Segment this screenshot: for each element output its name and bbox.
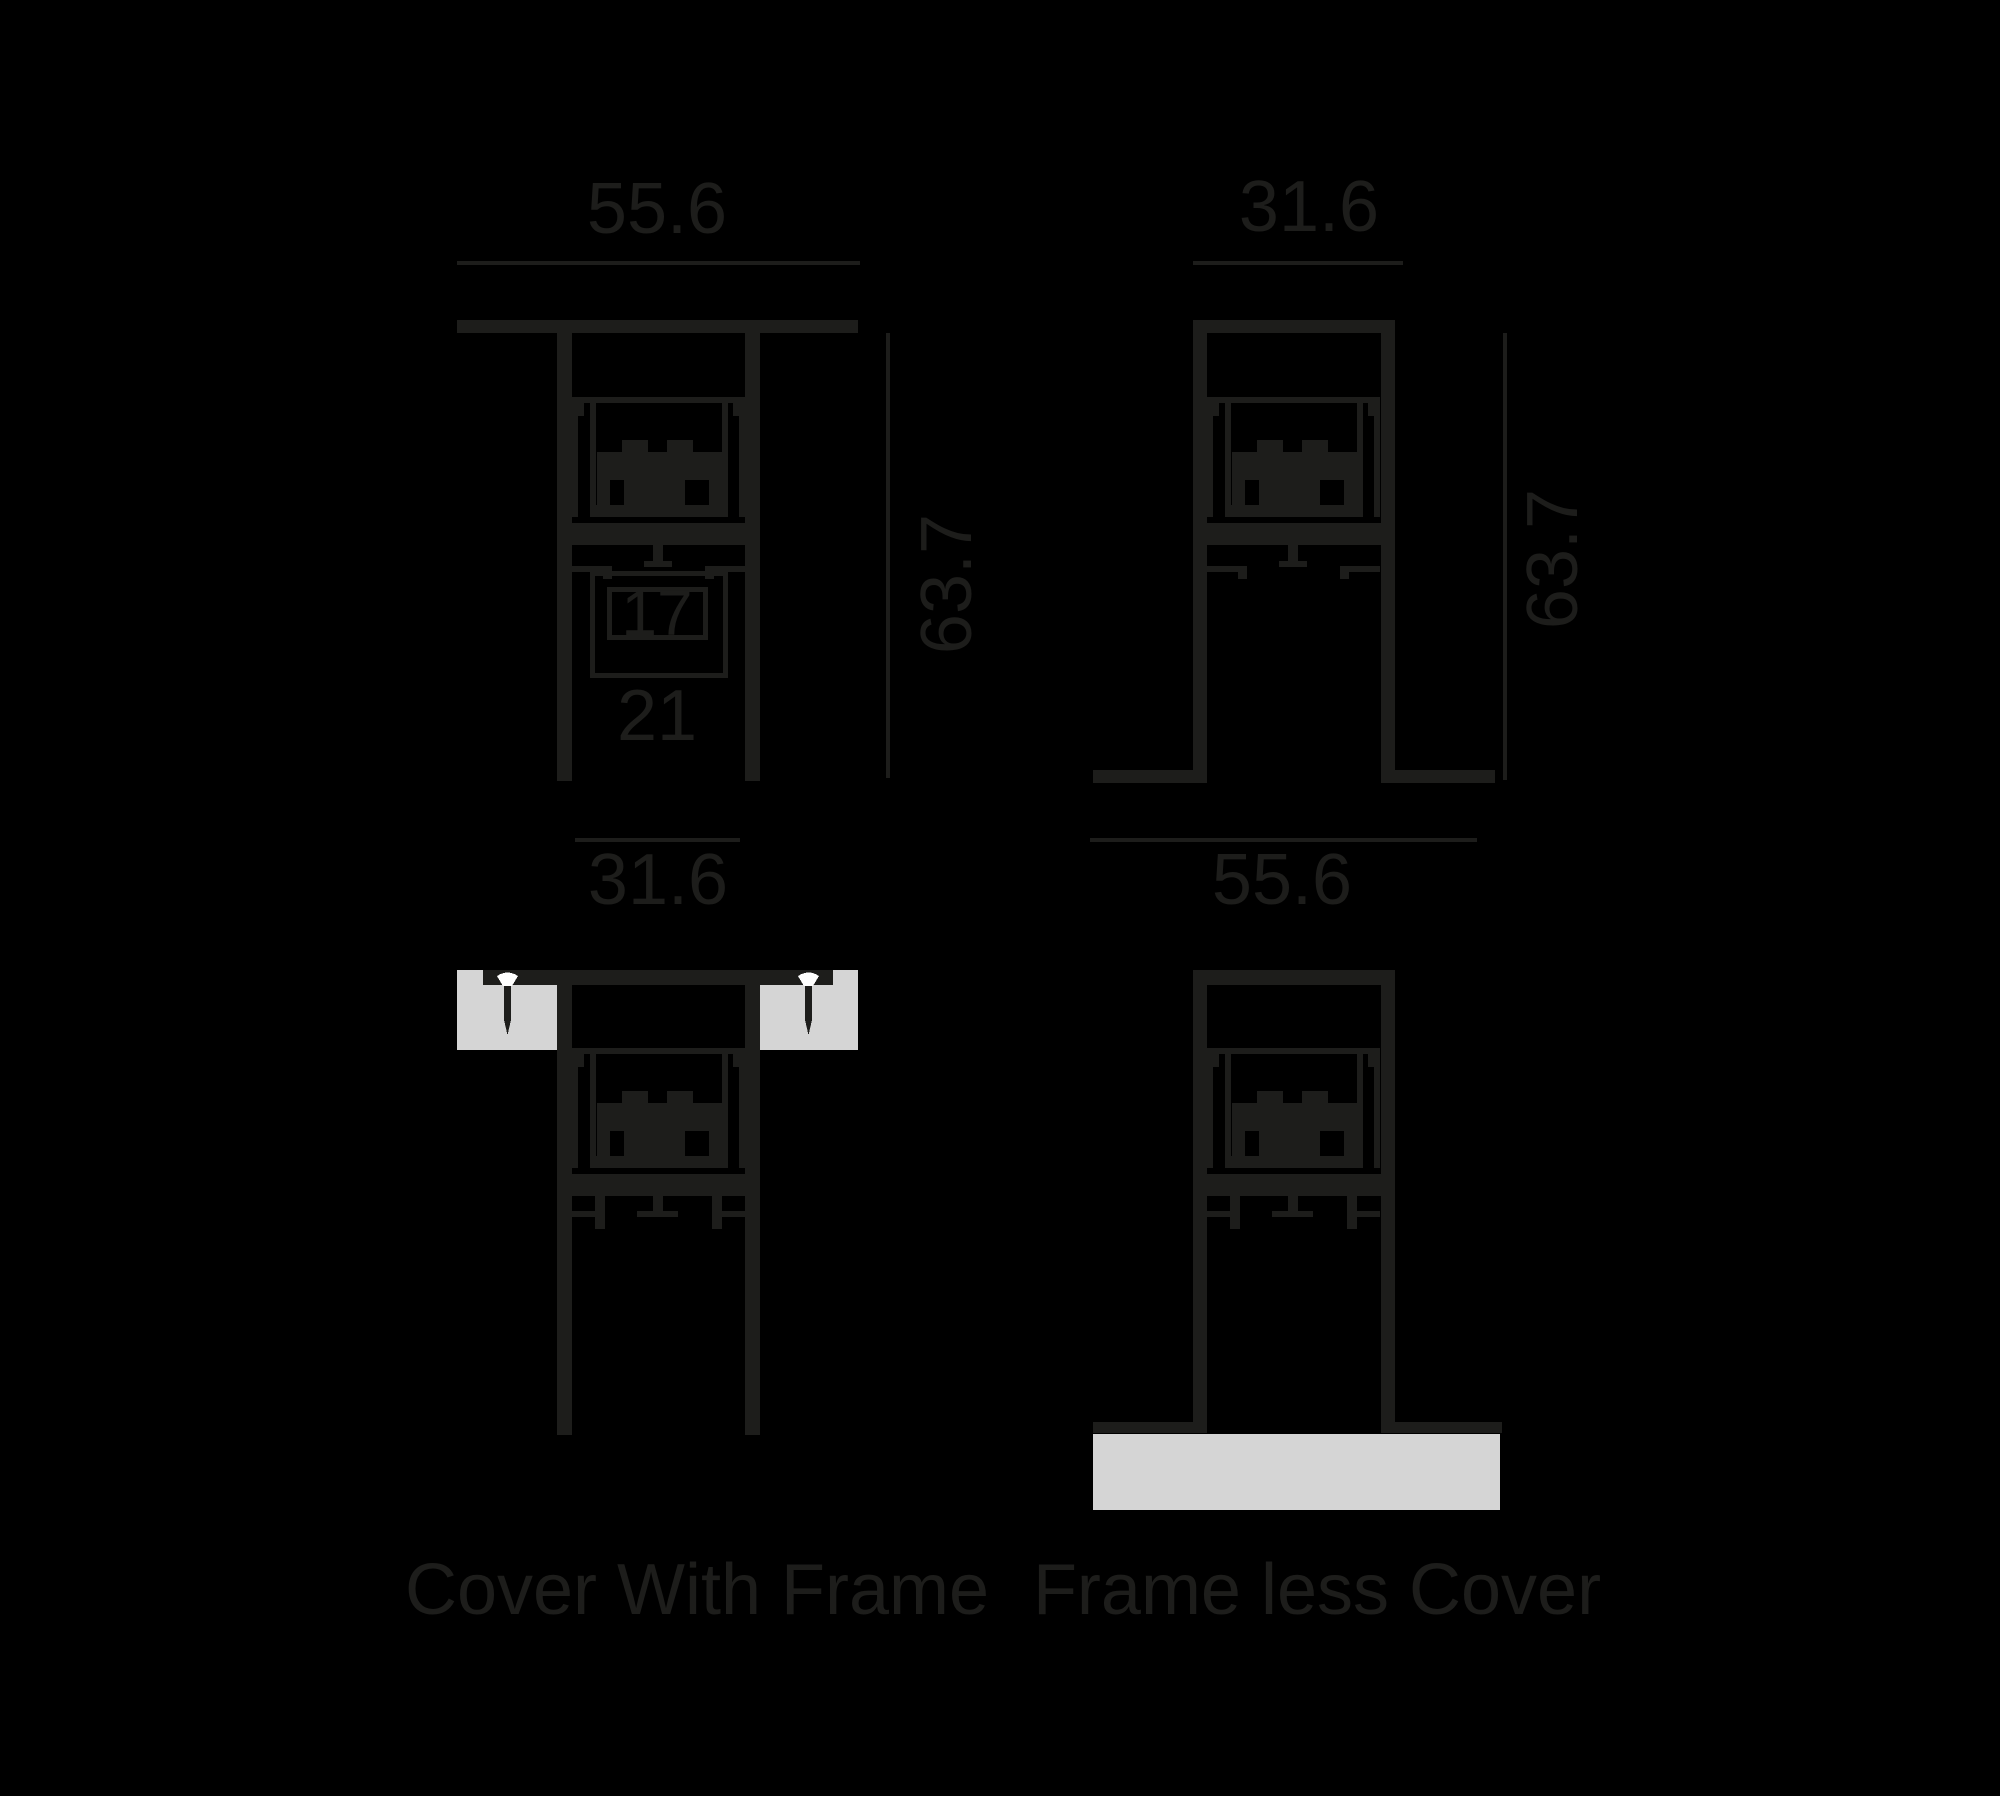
tray-tab-left bbox=[622, 440, 648, 453]
tray-center-block bbox=[1259, 1131, 1320, 1158]
inner-slot-box-left bbox=[607, 587, 612, 640]
tray-leg-left bbox=[597, 1131, 610, 1156]
bottom-right-install-diagram: Frame less Cover bbox=[1033, 970, 1601, 1630]
cover-assembly bbox=[1207, 1048, 1381, 1229]
clip-rail bbox=[572, 1048, 745, 1054]
outer-slot-box-right bbox=[723, 571, 728, 678]
tray-leg-right bbox=[709, 1131, 722, 1156]
side-spring-left bbox=[1207, 1065, 1213, 1168]
cover-assembly bbox=[572, 397, 745, 579]
dim-extension-line-height bbox=[1503, 333, 1507, 780]
cover-box-right bbox=[1357, 1054, 1363, 1168]
cover-assembly bbox=[572, 1048, 745, 1229]
clip-rail-tab-left bbox=[1207, 397, 1219, 416]
clip-rail-tab-right bbox=[733, 397, 745, 416]
tray-leg-left bbox=[1232, 1131, 1245, 1156]
cover-box-left bbox=[1225, 1054, 1231, 1168]
hook-right-tab bbox=[1347, 1192, 1357, 1229]
tray-leg-left bbox=[1232, 480, 1245, 505]
tray-leg-left bbox=[597, 480, 610, 505]
top-right-section-diagram: 31.6 bbox=[1090, 167, 1593, 920]
dim-line-top bbox=[457, 261, 860, 265]
side-spring-right bbox=[739, 1065, 745, 1168]
tray-tab-left bbox=[1257, 1091, 1283, 1104]
tray-tab-right bbox=[667, 440, 693, 453]
side-spring-right bbox=[739, 414, 745, 517]
side-spring-left bbox=[572, 414, 578, 517]
tray-tab-right bbox=[1302, 1091, 1328, 1104]
clip-rail bbox=[1207, 1048, 1380, 1054]
tray-tab-right bbox=[1302, 440, 1328, 453]
cover-box-right bbox=[722, 1054, 728, 1168]
clip-rail bbox=[572, 397, 745, 403]
hook-right-tab bbox=[1340, 566, 1349, 579]
clip-rail-tab-left bbox=[572, 1048, 584, 1067]
side-spring-left bbox=[572, 1065, 578, 1168]
hook-right-tab bbox=[712, 1192, 722, 1229]
dim-height-label: 63.7 bbox=[1513, 489, 1593, 629]
tray-leg-right bbox=[1344, 1131, 1357, 1156]
cover-box-left bbox=[590, 403, 596, 517]
wall-left bbox=[557, 985, 572, 1435]
wall-left bbox=[1193, 333, 1207, 783]
slot-dimension-boxes: 17 21 bbox=[590, 571, 728, 756]
dim-height-label: 63.7 bbox=[907, 514, 987, 654]
caption-cover-with-frame: Cover With Frame bbox=[405, 1550, 989, 1630]
top-bar bbox=[1193, 970, 1395, 985]
tray-bar bbox=[597, 1103, 722, 1131]
wall-right bbox=[745, 333, 760, 781]
wall-right bbox=[1381, 333, 1395, 783]
center-stem-crossbar bbox=[1272, 1211, 1313, 1217]
dim-width-bottom-label: 55.6 bbox=[1212, 840, 1352, 920]
tray-tab-left bbox=[622, 1091, 648, 1104]
top-left-section-diagram: 55.6 bbox=[457, 169, 987, 920]
wall-right bbox=[745, 985, 760, 1435]
outer-slot-box-left bbox=[590, 571, 595, 678]
bottom-flange-right bbox=[1381, 770, 1495, 783]
bottom-flange-right bbox=[1381, 1422, 1502, 1433]
dim-slot-inner-label: 17 bbox=[621, 577, 692, 649]
tray-bar bbox=[1232, 452, 1357, 480]
dim-slot-outer-label: 21 bbox=[617, 676, 697, 756]
cover-box-left bbox=[1225, 403, 1231, 517]
hook-left-tab bbox=[1230, 1192, 1240, 1229]
dim-width-top-label: 31.6 bbox=[1239, 167, 1379, 247]
cover-assembly bbox=[1207, 397, 1381, 579]
technical-drawing-canvas: 55.6 bbox=[0, 0, 2000, 1796]
dim-line-top bbox=[1193, 261, 1403, 265]
outer-slot-box-top bbox=[590, 571, 728, 576]
caption-frame-less-cover: Frame less Cover bbox=[1033, 1550, 1601, 1630]
screw-shaft-right bbox=[805, 986, 812, 1020]
clip-rail-tab-right bbox=[733, 1048, 745, 1067]
tray-leg-right bbox=[709, 480, 722, 505]
side-spring-left bbox=[1207, 414, 1213, 517]
tray-bar bbox=[1232, 1103, 1357, 1131]
clip-rail-tab-left bbox=[572, 397, 584, 416]
clip-rail-tab-right bbox=[1368, 1048, 1380, 1067]
screw-shaft-left bbox=[504, 986, 511, 1020]
flange-bar bbox=[457, 320, 858, 333]
clip-rail bbox=[1207, 397, 1380, 403]
tray-leg-right bbox=[1344, 480, 1357, 505]
tray-center-block bbox=[624, 480, 685, 507]
side-spring-right bbox=[1374, 414, 1380, 517]
center-stem-crossbar bbox=[1279, 561, 1307, 567]
profile-cross-section-drawing: 55.6 bbox=[0, 0, 2000, 1796]
hook-left-tab bbox=[595, 1192, 605, 1229]
top-bar bbox=[1193, 320, 1395, 333]
divider-band bbox=[572, 523, 745, 545]
bottom-flange-left bbox=[1093, 1422, 1207, 1433]
clip-rail-tab-right bbox=[1368, 397, 1380, 416]
dim-width-top-label: 55.6 bbox=[587, 169, 727, 249]
tray-center-block bbox=[1259, 480, 1320, 507]
wall-right bbox=[1381, 985, 1395, 1433]
center-stem-crossbar bbox=[644, 561, 672, 567]
center-stem-crossbar bbox=[637, 1211, 678, 1217]
tray-bar bbox=[597, 452, 722, 480]
tray-center-block bbox=[624, 1131, 685, 1158]
cover-box-left bbox=[590, 1054, 596, 1168]
hook-left-tab bbox=[1238, 566, 1247, 579]
divider-band bbox=[1207, 523, 1381, 545]
side-spring-right bbox=[1374, 1065, 1380, 1168]
bottom-flange-left bbox=[1093, 770, 1207, 783]
flange-bar bbox=[483, 970, 833, 985]
wall-left bbox=[557, 333, 572, 781]
plaster-slab bbox=[1093, 1434, 1500, 1510]
wall-left bbox=[1193, 985, 1207, 1433]
dim-width-bottom-label: 31.6 bbox=[588, 840, 728, 920]
dim-extension-line-height bbox=[886, 333, 890, 778]
inner-slot-box-right bbox=[703, 587, 708, 640]
tray-tab-left bbox=[1257, 440, 1283, 453]
tray-tab-right bbox=[667, 1091, 693, 1104]
cover-box-right bbox=[722, 403, 728, 517]
clip-rail-tab-left bbox=[1207, 1048, 1219, 1067]
cover-box-right bbox=[1357, 403, 1363, 517]
bottom-left-install-diagram: Cover With Frame bbox=[405, 970, 989, 1630]
